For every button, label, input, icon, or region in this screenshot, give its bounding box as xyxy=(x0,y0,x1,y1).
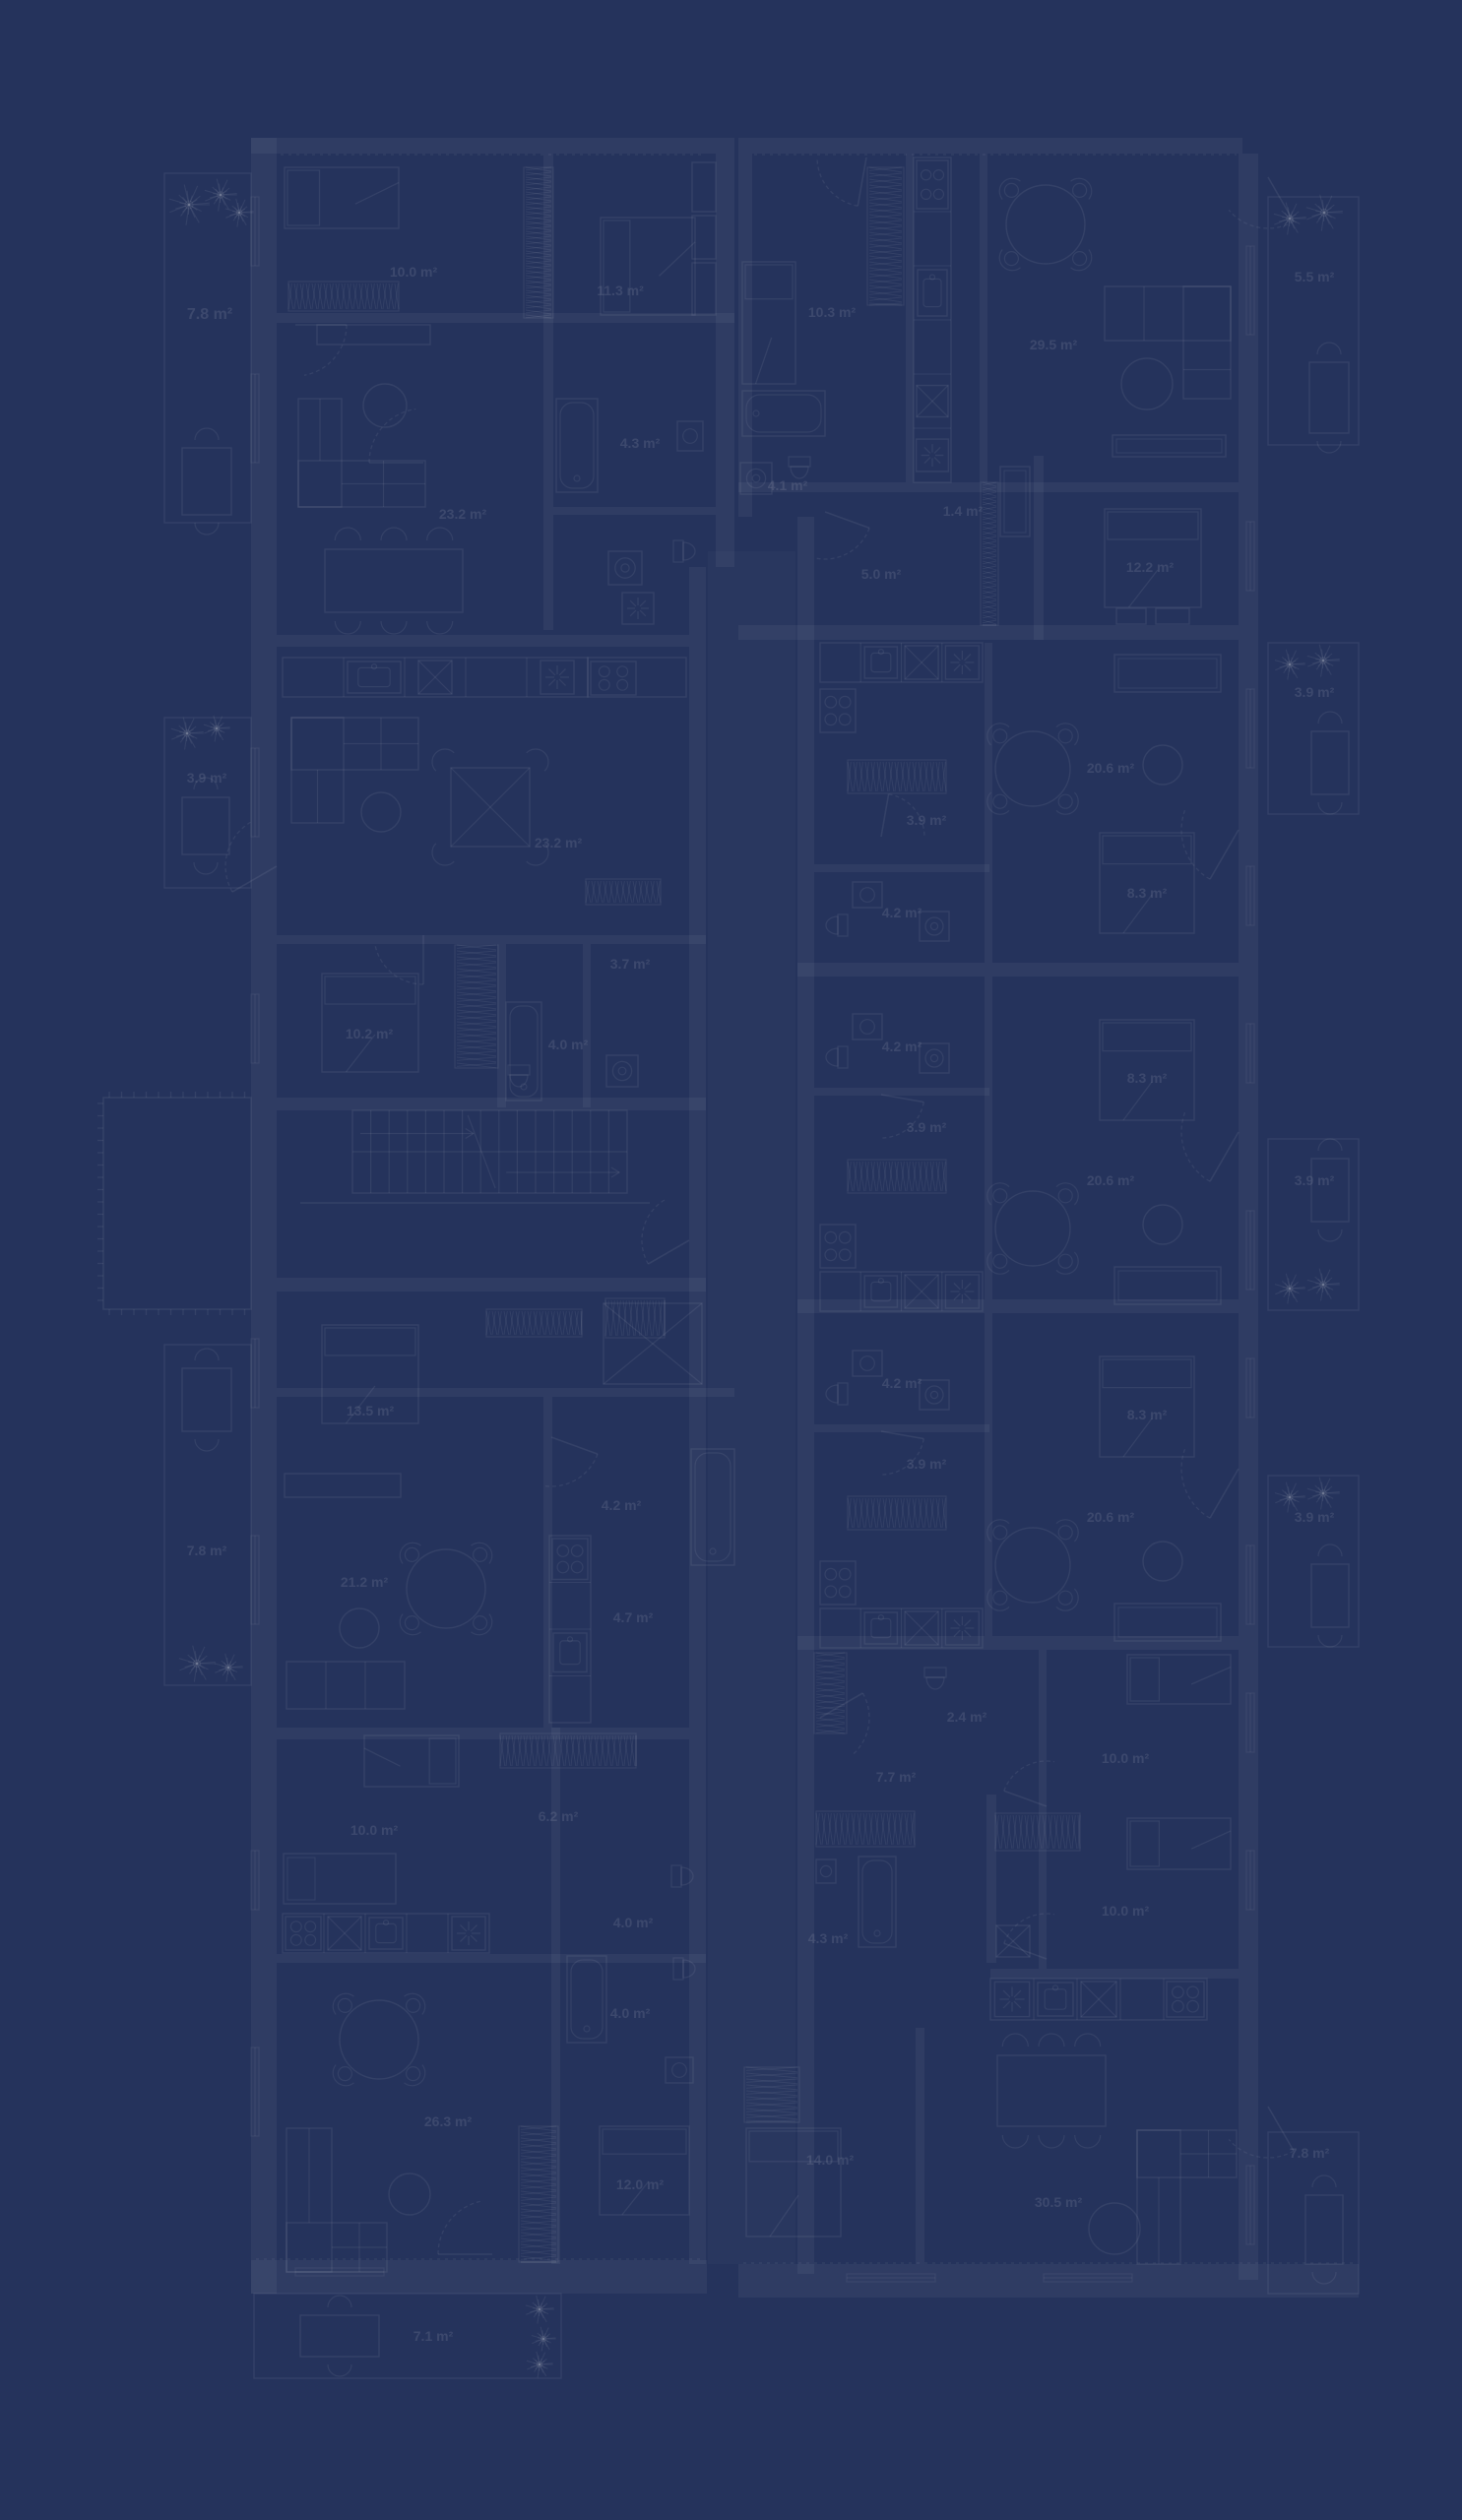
svg-text:8.3 m²: 8.3 m² xyxy=(1127,1070,1168,1086)
svg-text:3.9 m²: 3.9 m² xyxy=(907,1456,947,1472)
svg-text:5.0 m²: 5.0 m² xyxy=(861,566,902,582)
svg-text:2.4 m²: 2.4 m² xyxy=(947,1709,987,1725)
svg-text:29.5 m²: 29.5 m² xyxy=(1030,337,1078,352)
svg-text:10.0 m²: 10.0 m² xyxy=(390,264,438,280)
svg-text:20.6 m²: 20.6 m² xyxy=(1087,1172,1135,1188)
svg-text:3.9 m²: 3.9 m² xyxy=(907,812,947,828)
svg-text:3.7 m²: 3.7 m² xyxy=(610,956,651,972)
svg-text:10.3 m²: 10.3 m² xyxy=(808,304,857,320)
svg-text:12.0 m²: 12.0 m² xyxy=(616,2176,665,2192)
svg-text:14.0 m²: 14.0 m² xyxy=(806,2152,855,2168)
svg-text:12.2 m²: 12.2 m² xyxy=(1126,559,1175,575)
svg-text:6.2 m²: 6.2 m² xyxy=(539,1808,579,1824)
svg-text:13.5 m²: 13.5 m² xyxy=(347,1403,395,1418)
svg-text:4.3 m²: 4.3 m² xyxy=(808,1930,849,1946)
svg-text:7.1 m²: 7.1 m² xyxy=(413,2328,454,2344)
svg-text:20.6 m²: 20.6 m² xyxy=(1087,1509,1135,1525)
svg-text:3.9 m²: 3.9 m² xyxy=(1295,1172,1335,1188)
svg-text:10.2 m²: 10.2 m² xyxy=(346,1026,394,1041)
svg-text:30.5 m²: 30.5 m² xyxy=(1035,2194,1083,2210)
svg-text:26.3 m²: 26.3 m² xyxy=(424,2113,473,2129)
svg-text:1.4 m²: 1.4 m² xyxy=(943,503,984,519)
svg-text:7.8 m²: 7.8 m² xyxy=(187,306,232,323)
svg-text:10.0 m²: 10.0 m² xyxy=(1102,1903,1150,1919)
svg-text:4.0 m²: 4.0 m² xyxy=(613,1915,654,1930)
svg-text:23.2 m²: 23.2 m² xyxy=(535,835,583,850)
svg-text:4.7 m²: 4.7 m² xyxy=(613,1609,654,1625)
svg-text:3.9 m²: 3.9 m² xyxy=(1295,684,1335,700)
svg-text:4.2 m²: 4.2 m² xyxy=(882,1375,922,1391)
svg-text:4.2 m²: 4.2 m² xyxy=(602,1497,642,1513)
svg-text:4.3 m²: 4.3 m² xyxy=(620,435,661,451)
svg-text:7.8 m²: 7.8 m² xyxy=(187,1543,227,1558)
svg-text:8.3 m²: 8.3 m² xyxy=(1127,885,1168,901)
svg-text:21.2 m²: 21.2 m² xyxy=(341,1574,389,1590)
svg-text:10.0 m²: 10.0 m² xyxy=(1102,1750,1150,1766)
svg-text:4.2 m²: 4.2 m² xyxy=(882,1039,922,1054)
svg-text:23.2 m²: 23.2 m² xyxy=(439,506,487,522)
svg-text:7.7 m²: 7.7 m² xyxy=(876,1769,917,1785)
svg-text:3.9 m²: 3.9 m² xyxy=(1295,1509,1335,1525)
svg-text:4.1 m²: 4.1 m² xyxy=(768,477,808,493)
svg-text:20.6 m²: 20.6 m² xyxy=(1087,760,1135,776)
svg-text:8.3 m²: 8.3 m² xyxy=(1127,1407,1168,1422)
svg-text:11.3 m²: 11.3 m² xyxy=(597,283,644,298)
svg-text:4.2 m²: 4.2 m² xyxy=(882,905,922,920)
svg-text:10.0 m²: 10.0 m² xyxy=(350,1822,399,1838)
svg-text:4.0 m²: 4.0 m² xyxy=(548,1037,589,1052)
svg-text:5.5 m²: 5.5 m² xyxy=(1295,269,1335,284)
svg-text:4.0 m²: 4.0 m² xyxy=(610,2005,651,2021)
svg-text:3.9 m²: 3.9 m² xyxy=(907,1119,947,1135)
svg-text:7.8 m²: 7.8 m² xyxy=(1290,2145,1330,2161)
